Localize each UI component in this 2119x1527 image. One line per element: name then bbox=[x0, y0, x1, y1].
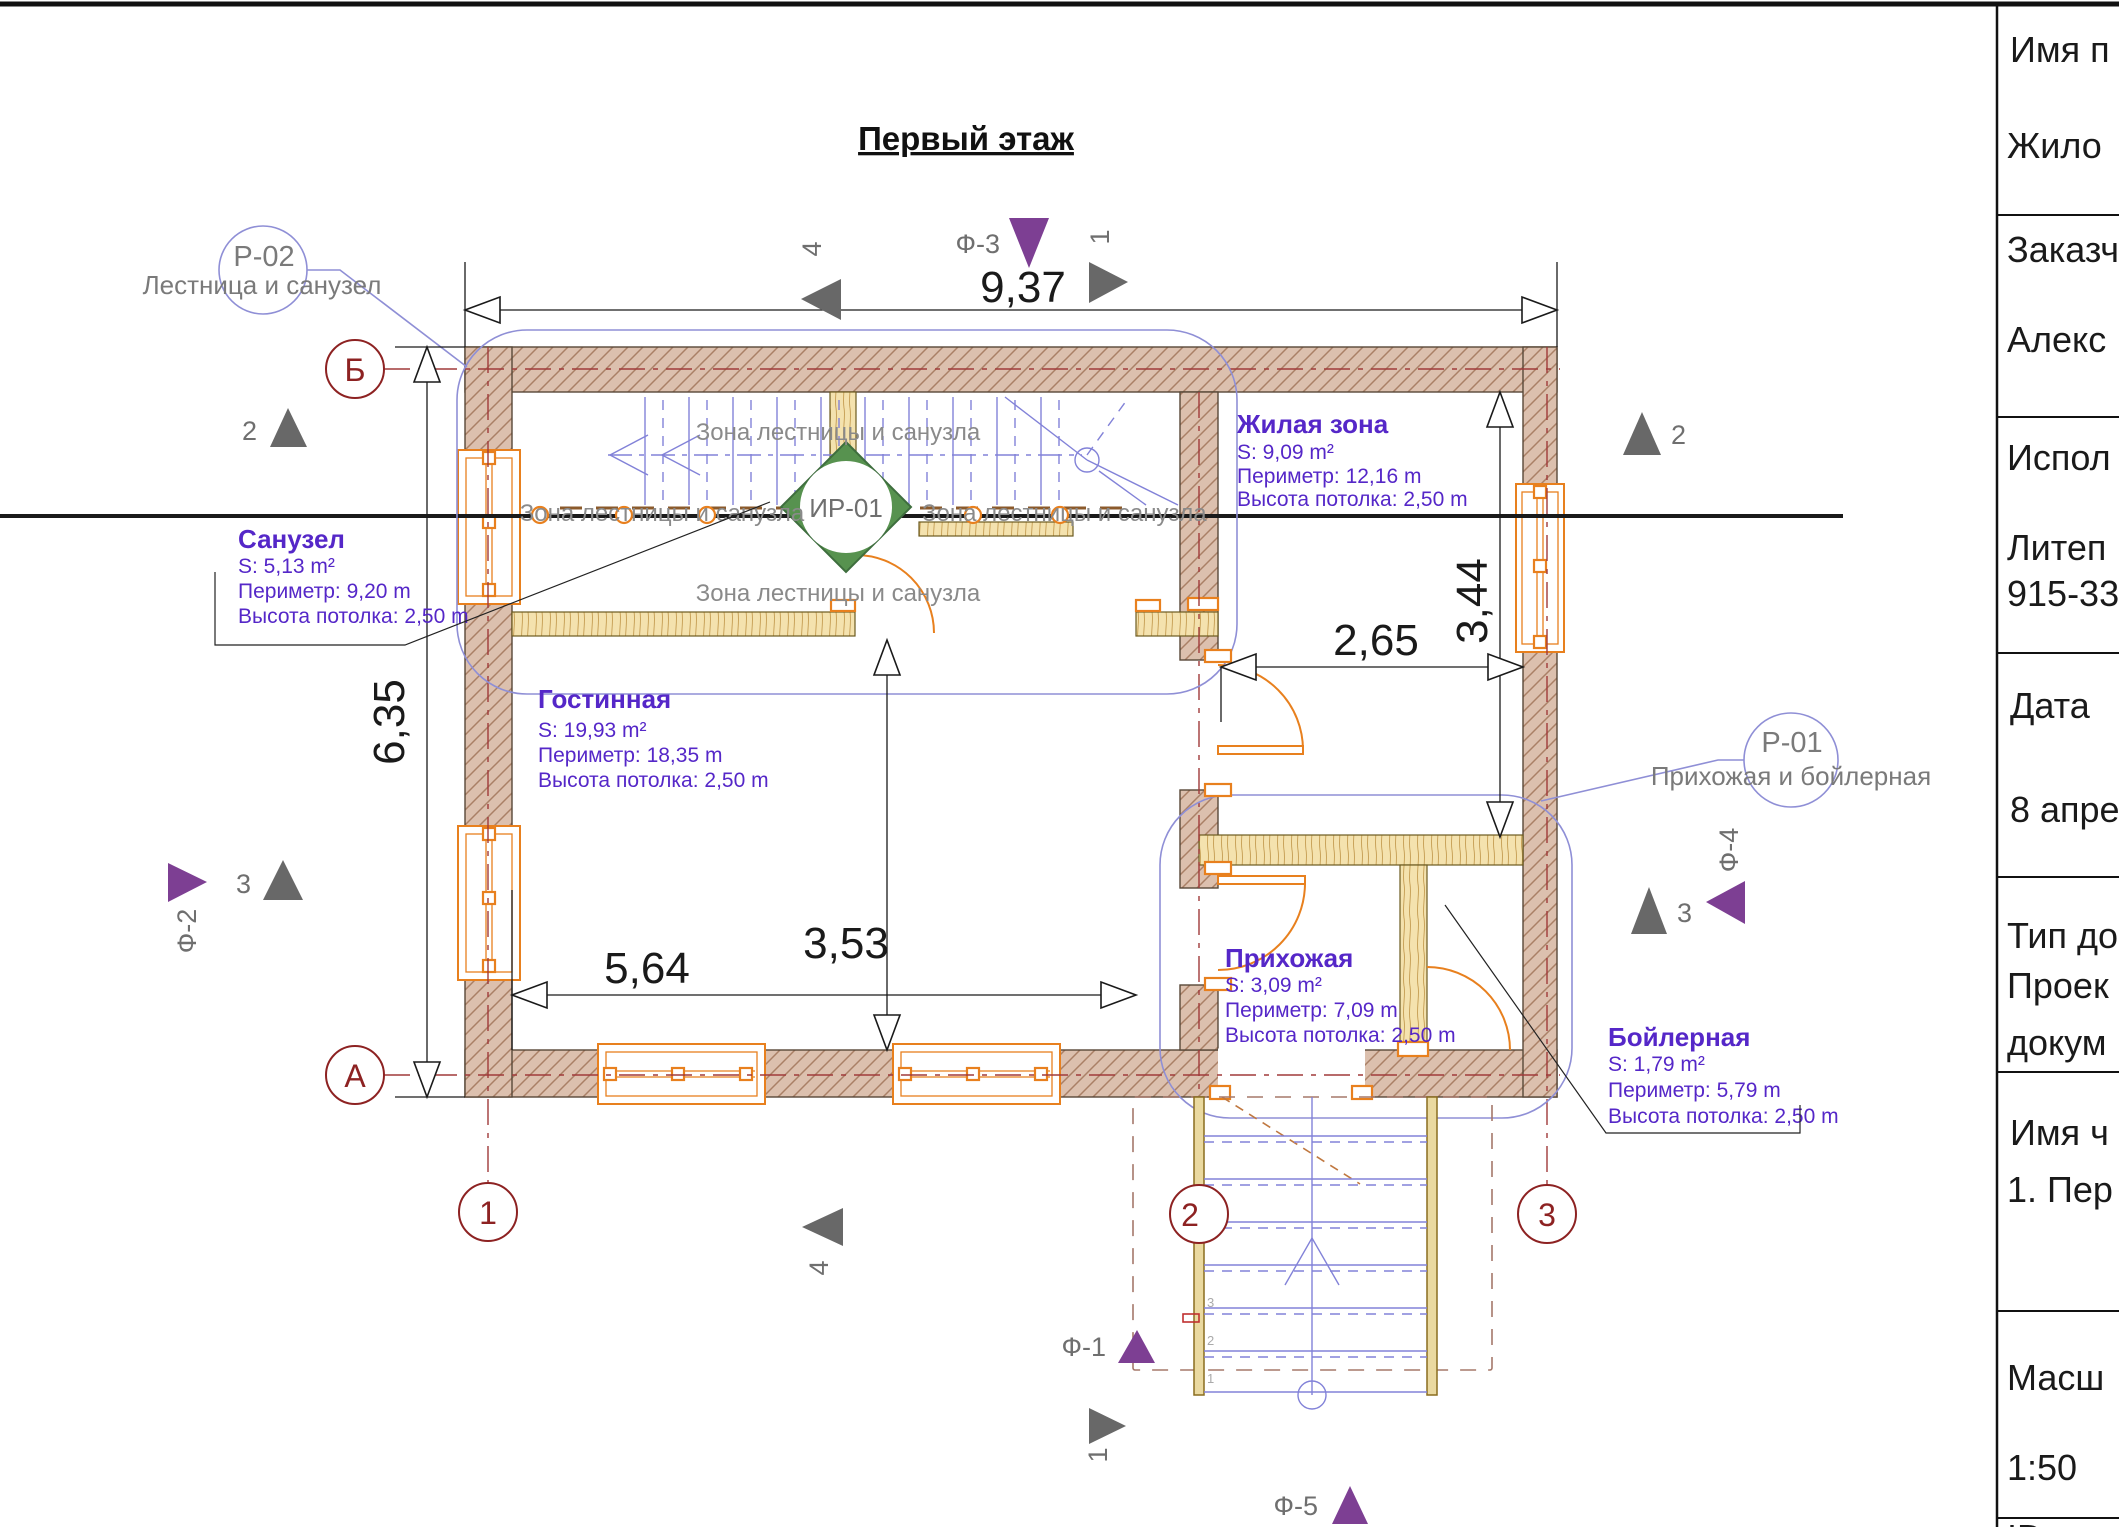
window-left-upper bbox=[458, 450, 520, 604]
dim-top-width: 9,37 bbox=[980, 263, 1066, 312]
door-living-hall-arc bbox=[1218, 665, 1303, 750]
room-sanuzel-perimeter: Периметр: 9,20 m bbox=[238, 580, 411, 603]
field-label-doctype: Тип до bbox=[2007, 915, 2118, 956]
field-value-executor: Литеп bbox=[2007, 527, 2106, 568]
callout-p01: Р-01 Прихожая и бойлерная bbox=[1651, 713, 1931, 807]
partition-boiler-post bbox=[1400, 865, 1427, 1050]
callout-p02-id: Р-02 bbox=[233, 241, 294, 273]
callout-p02: Р-02 Лестница и санузел bbox=[143, 226, 382, 314]
room-gostinnaya-perimeter: Периметр: 18,35 m bbox=[538, 744, 722, 767]
room-prihozhaya-perimeter: Периметр: 7,09 m bbox=[1225, 999, 1398, 1022]
room-prihozhaya-area: S: 3,09 m² bbox=[1225, 974, 1322, 997]
field-value-scale: 1:50 bbox=[2007, 1447, 2077, 1488]
callout-p01-id: Р-01 bbox=[1761, 727, 1822, 759]
door-living-hall-leaf bbox=[1218, 746, 1303, 754]
entrance-opening bbox=[1218, 1049, 1365, 1099]
floor-plan-canvas: Имя п Жило Заказч Алекс Испол Литеп 915-… bbox=[0, 0, 2119, 1527]
view-marker-3-left: 3 bbox=[236, 869, 251, 899]
field-value-client: Алекс bbox=[2007, 319, 2106, 360]
step-number-2: 2 bbox=[1207, 1333, 1214, 1348]
window-bottom-right bbox=[893, 1044, 1060, 1104]
room-boylernaya-area: S: 1,79 m² bbox=[1608, 1053, 1705, 1076]
window-right bbox=[1516, 484, 1564, 652]
field-label-executor: Испол bbox=[2007, 437, 2111, 478]
field-label-client: Заказч bbox=[2007, 229, 2119, 270]
ir01-label: ИР-01 bbox=[809, 493, 883, 523]
dim-gost-width: 5,64 bbox=[604, 944, 690, 993]
axis-b: Б bbox=[345, 352, 366, 388]
dim-living-height: 3,44 bbox=[1448, 558, 1497, 644]
view-marker-2-left: 2 bbox=[242, 416, 257, 446]
field-label-date: Дата bbox=[2010, 685, 2091, 726]
room-label-gostinnaya: Гостинная S: 19,93 m² Периметр: 18,35 m … bbox=[538, 684, 769, 792]
window-left-lower bbox=[458, 826, 520, 980]
partition-stair-left bbox=[512, 612, 855, 636]
room-sanuzel-name: Санузел bbox=[238, 524, 345, 554]
callout-p02-label: Лестница и санузел bbox=[143, 270, 382, 300]
room-zhilaya-perimeter: Периметр: 12,16 m bbox=[1237, 465, 1421, 488]
field-label-scale: Масш bbox=[2007, 1357, 2104, 1398]
field-value-executor-phone: 915-33 bbox=[2007, 573, 2119, 614]
step-number-3: 3 bbox=[1207, 1295, 1214, 1310]
callout-p01-label: Прихожая и бойлерная bbox=[1651, 761, 1931, 791]
zone-label-1: Зона лестницы и санузла bbox=[696, 419, 981, 446]
entrance-door-dashed bbox=[1222, 1097, 1360, 1184]
field-value-project: Жило bbox=[2007, 125, 2102, 166]
field-label-layout-id: ID ма bbox=[2007, 1517, 2099, 1527]
exterior-stair: 3 2 1 bbox=[1133, 1097, 1492, 1409]
photo-marker-f3: Ф-3 bbox=[955, 229, 1000, 259]
field-value-sheetname: 1. Пер bbox=[2007, 1169, 2113, 1210]
view-marker-2-right: 2 bbox=[1671, 420, 1686, 450]
room-prihozhaya-ceiling: Высота потолка: 2,50 m bbox=[1225, 1024, 1456, 1047]
room-zhilaya-name: Жилая зона bbox=[1236, 409, 1389, 439]
photo-marker-f4: Ф-4 bbox=[1714, 828, 1744, 873]
field-label-project: Имя п bbox=[2010, 29, 2110, 70]
room-boylernaya-ceiling: Высота потолка: 2,50 m bbox=[1608, 1105, 1839, 1128]
field-value-doctype-2: докум bbox=[2007, 1022, 2107, 1063]
stair-rail-right bbox=[1427, 1097, 1437, 1395]
room-prihozhaya-name: Прихожая bbox=[1225, 943, 1353, 973]
room-sanuzel-area: S: 5,13 m² bbox=[238, 555, 335, 578]
window-bottom-left bbox=[598, 1044, 765, 1104]
page-title: Первый этаж bbox=[858, 120, 1074, 157]
drawing-sheet: Имя п Жило Заказч Алекс Испол Литеп 915-… bbox=[0, 0, 2119, 1527]
photo-marker-f2: Ф-2 bbox=[172, 909, 202, 954]
room-gostinnaya-area: S: 19,93 m² bbox=[538, 719, 647, 742]
door-hall-leaf bbox=[1218, 876, 1305, 884]
zone-label-4: Зона лестницы и санузла bbox=[696, 580, 981, 607]
view-marker-1-top: 1 bbox=[1085, 229, 1115, 244]
view-marker-1-bottom: 1 bbox=[1083, 1447, 1113, 1462]
titleblock-dividers bbox=[1997, 215, 2119, 1518]
step-number-1: 1 bbox=[1207, 1371, 1214, 1386]
room-zhilaya-area: S: 9,09 m² bbox=[1237, 441, 1334, 464]
titleblock-fields: Имя п Жило Заказч Алекс Испол Литеп 915-… bbox=[2007, 29, 2119, 1527]
room-zhilaya-ceiling: Высота потолка: 2,50 m bbox=[1237, 488, 1468, 511]
room-gostinnaya-ceiling: Высота потолка: 2,50 m bbox=[538, 769, 769, 792]
photo-marker-f5: Ф-5 bbox=[1273, 1491, 1318, 1521]
dim-left-height: 6,35 bbox=[365, 679, 414, 765]
axis-1: 1 bbox=[479, 1195, 497, 1231]
partition-stair-right bbox=[1136, 612, 1218, 636]
room-boylernaya-name: Бойлерная bbox=[1608, 1022, 1750, 1052]
view-marker-4-bottom: 4 bbox=[804, 1260, 834, 1275]
room-sanuzel-ceiling: Высота потолка: 2,50 m bbox=[238, 605, 469, 628]
partition-hall-top bbox=[1199, 835, 1523, 865]
axis-3: 3 bbox=[1538, 1197, 1556, 1233]
view-marker-4-top: 4 bbox=[797, 241, 827, 256]
room-gostinnaya-name: Гостинная bbox=[538, 684, 671, 714]
dim-gost-height: 3,53 bbox=[803, 919, 889, 968]
axis-2: 2 bbox=[1181, 1197, 1199, 1233]
field-label-sheetname: Имя ч bbox=[2010, 1112, 2109, 1153]
field-value-date: 8 апре bbox=[2010, 789, 2119, 830]
dim-hall-width: 2,65 bbox=[1333, 616, 1419, 665]
stair-rail-left bbox=[1194, 1097, 1204, 1395]
zone-label-3: Зона лестницы и санузла bbox=[922, 500, 1207, 527]
zone-label-2: Зона лестницы и санузла bbox=[520, 500, 805, 527]
view-marker-3-right: 3 bbox=[1677, 898, 1692, 928]
wall-right bbox=[1523, 347, 1557, 1097]
room-boylernaya-perimeter: Периметр: 5,79 m bbox=[1608, 1079, 1781, 1102]
field-value-doctype: Проек bbox=[2007, 965, 2109, 1006]
photo-marker-f1: Ф-1 bbox=[1061, 1332, 1106, 1362]
room-label-zhilaya: Жилая зона S: 9,09 m² Периметр: 12,16 m … bbox=[1236, 409, 1468, 511]
axis-a: А bbox=[344, 1058, 366, 1094]
